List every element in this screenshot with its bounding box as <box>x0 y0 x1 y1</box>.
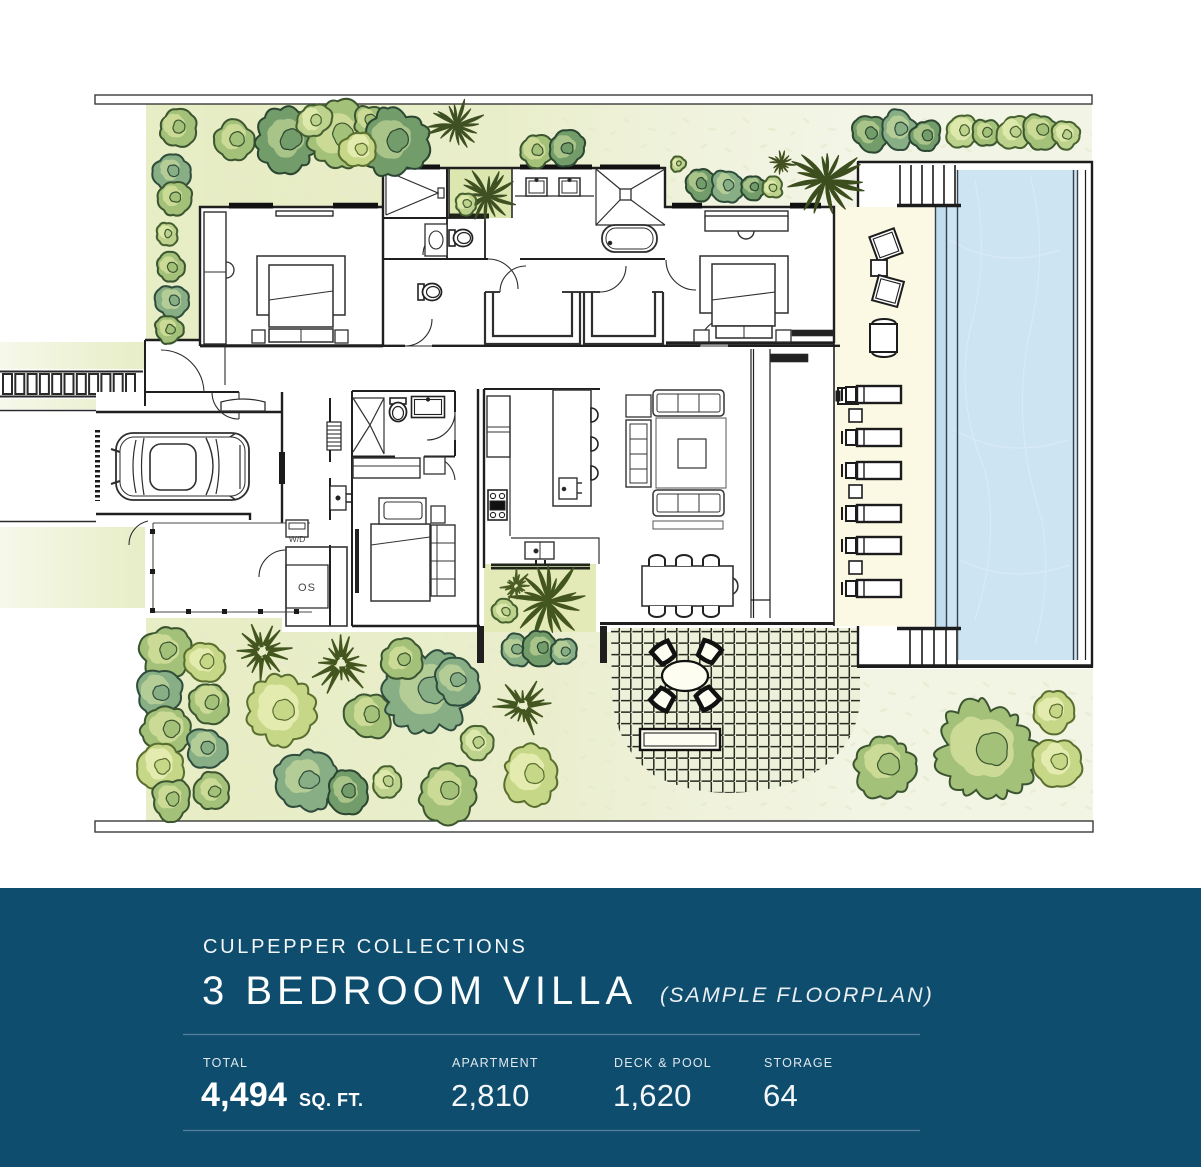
svg-text:OS: OS <box>298 582 316 594</box>
svg-text:(SAMPLE FLOORPLAN): (SAMPLE FLOORPLAN) <box>660 983 934 1007</box>
svg-text:4,494: 4,494 <box>201 1076 287 1114</box>
svg-text:CULPEPPER COLLECTIONS: CULPEPPER COLLECTIONS <box>203 936 528 958</box>
svg-text:2,810: 2,810 <box>451 1078 530 1113</box>
svg-text:1,620: 1,620 <box>613 1078 692 1113</box>
svg-text:TOTAL: TOTAL <box>203 1056 248 1070</box>
svg-text:APARTMENT: APARTMENT <box>452 1056 539 1070</box>
svg-text:DECK & POOL: DECK & POOL <box>614 1056 712 1070</box>
svg-text:SQ. FT.: SQ. FT. <box>299 1090 364 1110</box>
svg-text:STORAGE: STORAGE <box>764 1056 833 1070</box>
svg-text:64: 64 <box>763 1078 798 1113</box>
svg-text:W/D: W/D <box>289 534 306 544</box>
svg-text:3 BEDROOM VILLA: 3 BEDROOM VILLA <box>202 969 637 1013</box>
